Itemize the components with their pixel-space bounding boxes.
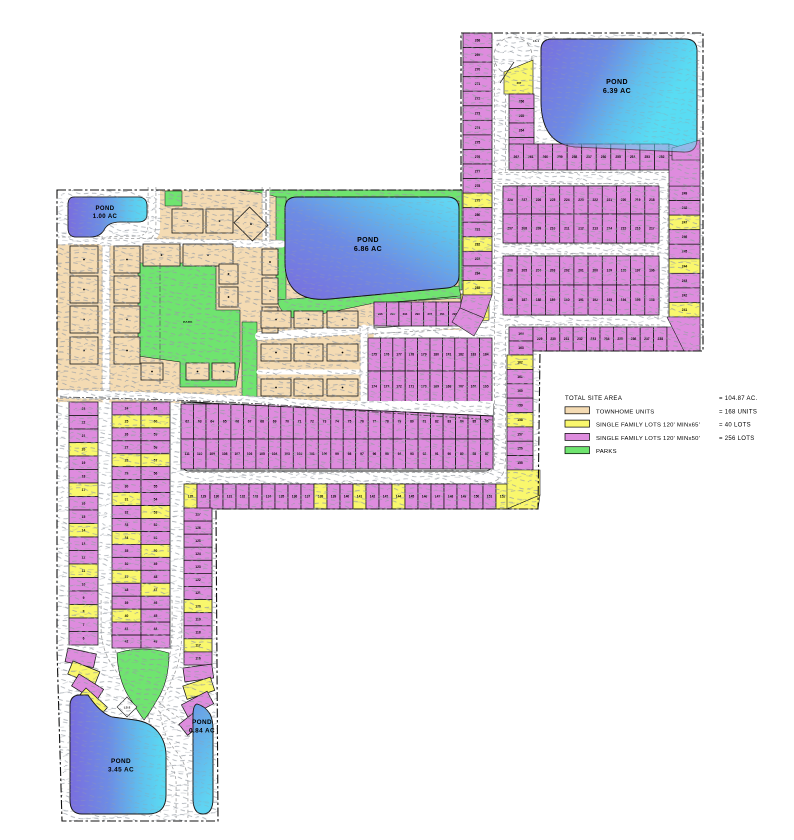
svg-text:214: 214 [607,227,613,231]
svg-text:237: 237 [644,337,650,341]
svg-text:99: 99 [335,452,339,456]
svg-text:217: 217 [649,227,655,231]
svg-text:20: 20 [82,447,86,451]
svg-text:30: 30 [125,484,129,488]
svg-text:142: 142 [370,495,376,499]
svg-text:44: 44 [154,627,158,631]
svg-text:6.86 AC: 6.86 AC [354,246,382,253]
svg-text:205: 205 [522,269,528,273]
svg-text:37: 37 [125,575,129,579]
svg-text:206: 206 [507,269,513,273]
svg-text:= 40 LOTS: = 40 LOTS [719,423,751,429]
svg-text:130: 130 [214,495,220,499]
svg-text:84: 84 [460,420,464,424]
svg-text:57: 57 [154,459,158,463]
svg-text:144: 144 [396,495,402,499]
svg-text:33: 33 [125,523,129,527]
svg-text:53: 53 [154,510,158,514]
svg-text:281: 281 [475,228,481,232]
svg-text:35: 35 [125,549,129,553]
svg-text:25: 25 [125,420,129,424]
svg-text:230: 230 [550,337,556,341]
svg-text:264: 264 [519,128,525,132]
svg-text:234: 234 [604,337,610,341]
svg-text:15: 15 [82,515,86,519]
svg-text:276: 276 [475,155,481,159]
svg-text:7: 7 [83,623,85,627]
svg-text:231: 231 [564,337,570,341]
svg-text:273: 273 [475,111,481,115]
svg-text:104: 104 [272,452,278,456]
svg-text:196: 196 [649,298,655,302]
svg-text:109: 109 [209,452,215,456]
svg-text:182: 182 [458,353,464,357]
svg-text:161: 161 [517,375,523,379]
svg-text:208: 208 [522,227,528,231]
svg-text:143: 143 [383,495,389,499]
svg-text:158: 158 [517,418,523,422]
svg-text:165: 165 [483,385,489,389]
svg-text:45: 45 [154,614,158,618]
svg-text:202: 202 [564,269,570,273]
svg-text:198: 198 [621,269,627,273]
svg-text:173: 173 [384,385,390,389]
svg-text:92: 92 [423,452,427,456]
svg-text:36: 36 [125,562,129,566]
svg-text:28: 28 [125,459,129,463]
svg-text:PARK: PARK [183,320,193,324]
svg-text:POND: POND [96,206,115,212]
svg-text:65: 65 [223,420,227,424]
svg-text:190: 190 [564,298,570,302]
svg-text:177: 177 [396,353,402,357]
svg-text:62: 62 [185,420,189,424]
svg-text:91: 91 [435,452,439,456]
svg-text:246: 246 [682,235,688,239]
svg-text:178: 178 [409,353,415,357]
svg-text:203: 203 [550,269,556,273]
svg-text:58: 58 [154,446,158,450]
svg-text:96: 96 [373,452,377,456]
svg-text:257: 257 [586,155,592,159]
svg-text:31: 31 [125,497,129,501]
svg-text:197: 197 [635,269,641,273]
svg-text:180: 180 [433,353,439,357]
svg-text:117: 117 [195,644,200,648]
svg-text:260: 260 [543,155,549,159]
svg-text:269: 269 [475,53,481,57]
svg-text:POND: POND [111,758,131,765]
svg-text:279: 279 [475,199,481,203]
svg-text:16: 16 [82,501,86,505]
svg-text:79: 79 [398,420,402,424]
svg-text:192: 192 [592,298,598,302]
svg-text:271: 271 [475,82,481,86]
svg-text:90: 90 [447,452,451,456]
svg-text:11: 11 [82,569,86,573]
svg-text:23: 23 [82,407,86,411]
svg-text:86: 86 [485,420,489,424]
svg-text:59: 59 [154,433,158,437]
svg-text:123: 123 [195,565,201,569]
svg-text:148: 148 [448,495,454,499]
svg-text:186: 186 [507,298,513,302]
svg-text:278: 278 [475,184,481,188]
svg-text:77: 77 [373,420,377,424]
svg-text:258: 258 [572,155,578,159]
svg-text:294: 294 [403,312,408,316]
svg-text:209: 209 [536,227,542,231]
svg-text:42: 42 [125,640,129,644]
svg-text:295: 295 [390,312,395,316]
svg-text:3.45 AC: 3.45 AC [108,767,134,774]
svg-text:141: 141 [357,495,363,499]
svg-text:267: 267 [517,81,522,85]
svg-text:105: 105 [259,452,265,456]
svg-text:49: 49 [154,562,158,566]
svg-text:200: 200 [592,269,598,273]
svg-text:40: 40 [125,614,129,618]
svg-text:75: 75 [348,420,352,424]
svg-text:80: 80 [410,420,414,424]
svg-text:196: 196 [649,269,655,273]
svg-text:0.84 AC: 0.84 AC [189,728,215,735]
svg-text:187: 187 [522,298,528,302]
svg-text:34: 34 [125,536,129,540]
svg-text:159: 159 [517,404,523,408]
svg-text:= 168 UNITS: = 168 UNITS [719,409,757,415]
svg-text:272: 272 [475,97,481,101]
svg-text:146: 146 [422,495,428,499]
svg-text:225: 225 [550,198,556,202]
svg-text:183: 183 [471,353,477,357]
svg-text:171: 171 [409,385,415,389]
svg-text:151: 151 [487,495,493,499]
svg-text:296: 296 [378,312,383,316]
svg-text:133: 133 [253,495,259,499]
svg-text:221: 221 [607,198,613,202]
svg-text:118: 118 [195,631,200,635]
svg-text:125: 125 [195,539,201,543]
svg-text:97: 97 [360,452,364,456]
svg-text:137: 137 [305,495,311,499]
svg-text:249: 249 [682,192,688,196]
svg-text:78: 78 [385,420,389,424]
svg-text:LS-1: LS-1 [533,39,540,43]
svg-text:167: 167 [458,385,464,389]
svg-text:116: 116 [195,657,200,661]
svg-text:211: 211 [564,227,569,231]
svg-text:93: 93 [410,452,414,456]
svg-text:PARKS: PARKS [596,449,617,455]
svg-text:132: 132 [240,495,246,499]
svg-text:43: 43 [154,640,158,644]
svg-text:169: 169 [433,385,439,389]
svg-text:244: 244 [682,264,688,268]
svg-text:227: 227 [522,198,528,202]
svg-text:127: 127 [195,513,201,517]
svg-text:121: 121 [195,591,201,595]
svg-text:195: 195 [635,298,641,302]
svg-text:22: 22 [82,420,86,424]
svg-text:145: 145 [409,495,415,499]
svg-text:283: 283 [475,257,481,261]
svg-text:70: 70 [285,420,289,424]
svg-text:285: 285 [475,286,481,290]
svg-text:238: 238 [658,337,664,341]
svg-text:210: 210 [550,227,556,231]
svg-text:9: 9 [83,596,85,600]
svg-text:229: 229 [537,337,543,341]
svg-text:147: 147 [435,495,441,499]
svg-text:26: 26 [125,433,129,437]
svg-text:10: 10 [82,583,86,587]
svg-text:51: 51 [154,536,158,540]
svg-text:160: 160 [517,389,523,393]
svg-text:155: 155 [517,461,523,465]
svg-text:280: 280 [475,213,481,217]
svg-text:61: 61 [154,407,158,411]
svg-text:19: 19 [82,461,86,465]
svg-text:24: 24 [125,407,129,411]
svg-text:14: 14 [82,529,86,533]
svg-text:292: 292 [427,312,432,316]
svg-text:83: 83 [447,420,451,424]
svg-text:82: 82 [435,420,439,424]
svg-text:176: 176 [384,353,390,357]
svg-text:247: 247 [682,221,688,225]
svg-text:188: 188 [536,298,542,302]
svg-text:261: 261 [528,155,534,159]
svg-text:12: 12 [82,556,86,560]
svg-text:170: 170 [421,385,427,389]
svg-text:223: 223 [578,198,584,202]
svg-text:POND: POND [357,237,379,244]
svg-text:8: 8 [83,610,85,614]
svg-text:101: 101 [309,452,315,456]
svg-text:174: 174 [371,385,377,389]
svg-text:179: 179 [421,353,427,357]
svg-text:233: 233 [591,337,597,341]
svg-text:64: 64 [210,420,214,424]
svg-text:242: 242 [682,293,688,297]
svg-text:98: 98 [348,452,352,456]
svg-text:226: 226 [536,198,542,202]
svg-text:194: 194 [621,298,627,302]
svg-text:47: 47 [154,588,158,592]
svg-text:54: 54 [154,497,158,501]
svg-text:128: 128 [188,495,194,499]
svg-text:38: 38 [125,588,129,592]
svg-text:268: 268 [475,39,481,43]
svg-text:131: 131 [227,495,233,499]
svg-text:213: 213 [592,227,598,231]
svg-text:218: 218 [649,198,655,202]
svg-text:201: 201 [578,269,584,273]
svg-text:139: 139 [331,495,337,499]
svg-text:95: 95 [385,452,389,456]
svg-text:157: 157 [517,432,523,436]
svg-text:13: 13 [82,542,86,546]
svg-text:270: 270 [475,68,481,72]
svg-text:150: 150 [474,495,480,499]
svg-text:252: 252 [659,155,665,159]
svg-text:68: 68 [260,420,264,424]
svg-text:215: 215 [621,227,627,231]
svg-text:126: 126 [195,526,201,530]
svg-text:243: 243 [682,279,688,283]
svg-text:259: 259 [557,155,563,159]
svg-text:235: 235 [617,337,623,341]
svg-text:103: 103 [284,452,290,456]
svg-text:166: 166 [471,385,477,389]
svg-text:71: 71 [298,420,302,424]
svg-text:85: 85 [472,420,476,424]
svg-text:119: 119 [195,617,200,621]
svg-text:129: 129 [201,495,207,499]
svg-text:89: 89 [460,452,464,456]
svg-text:136: 136 [292,495,298,499]
svg-text:124: 124 [195,552,201,556]
svg-text:266: 266 [519,100,525,104]
svg-text:111: 111 [185,452,190,456]
svg-text:56: 56 [154,471,158,475]
svg-text:107: 107 [234,452,240,456]
svg-text:6: 6 [83,637,85,641]
svg-text:224: 224 [564,198,570,202]
svg-text:100: 100 [322,452,328,456]
svg-text:164: 164 [518,332,524,336]
svg-text:17: 17 [82,488,86,492]
svg-text:27: 27 [125,446,129,450]
svg-text:73: 73 [323,420,327,424]
svg-text:52: 52 [154,523,158,527]
svg-text:102: 102 [297,452,303,456]
svg-text:66: 66 [235,420,239,424]
svg-text:LS-2: LS-2 [124,706,131,710]
svg-text:48: 48 [154,575,158,579]
svg-text:216: 216 [635,227,641,231]
svg-text:1.00 AC: 1.00 AC [93,214,118,220]
svg-text:152: 152 [500,495,506,499]
svg-text:199: 199 [607,269,613,273]
svg-text:= 104.87 AC.: = 104.87 AC. [719,396,757,402]
svg-text:81: 81 [423,420,427,424]
svg-text:255: 255 [615,155,621,159]
svg-text:207: 207 [507,227,513,231]
svg-text:18: 18 [82,474,86,478]
svg-text:SINGLE FAMILY LOTS 120' MINx65: SINGLE FAMILY LOTS 120' MINx65' [596,423,700,429]
svg-text:TOWNHOME UNITS: TOWNHOME UNITS [596,409,654,415]
svg-text:46: 46 [154,601,158,605]
svg-text:88: 88 [472,452,476,456]
svg-text:134: 134 [266,495,272,499]
svg-text:39: 39 [125,601,129,605]
svg-text:191: 191 [578,298,584,302]
svg-text:149: 149 [461,495,467,499]
svg-text:67: 67 [248,420,252,424]
svg-text:63: 63 [198,420,202,424]
svg-text:108: 108 [222,452,228,456]
svg-text:72: 72 [310,420,314,424]
svg-text:50: 50 [154,549,158,553]
svg-text:184: 184 [483,353,489,357]
svg-text:175: 175 [371,353,377,357]
svg-text:162: 162 [517,360,523,364]
svg-text:248: 248 [682,206,688,210]
svg-text:193: 193 [607,298,613,302]
svg-text:163: 163 [518,346,524,350]
svg-text:41: 41 [125,627,129,631]
svg-text:228: 228 [507,198,513,202]
svg-text:241: 241 [682,308,688,312]
svg-text:138: 138 [318,495,324,499]
svg-text:204: 204 [536,269,542,273]
svg-text:76: 76 [360,420,364,424]
svg-text:293: 293 [415,312,420,316]
svg-text:55: 55 [154,484,158,488]
svg-text:212: 212 [578,227,584,231]
svg-text:236: 236 [631,337,637,341]
svg-text:262: 262 [514,155,520,159]
svg-text:181: 181 [446,353,452,357]
svg-text:168: 168 [446,385,452,389]
svg-text:122: 122 [195,578,201,582]
svg-text:60: 60 [154,420,158,424]
svg-text:140: 140 [344,495,350,499]
svg-text:172: 172 [396,385,402,389]
svg-text:TOTAL SITE AREA: TOTAL SITE AREA [565,396,622,402]
svg-text:106: 106 [247,452,253,456]
svg-text:6.39 AC: 6.39 AC [603,88,631,95]
svg-text:265: 265 [519,114,525,118]
svg-text:291: 291 [440,312,445,316]
svg-text:232: 232 [577,337,583,341]
svg-text:274: 274 [475,126,481,130]
svg-text:110: 110 [197,452,202,456]
svg-text:189: 189 [550,298,556,302]
svg-text:= 256 LOTS: = 256 LOTS [719,436,755,442]
svg-text:220: 220 [621,198,627,202]
svg-text:253: 253 [644,155,650,159]
svg-text:POND: POND [606,79,628,86]
svg-text:282: 282 [475,242,481,246]
svg-text:254: 254 [630,155,636,159]
svg-text:69: 69 [273,420,277,424]
svg-text:284: 284 [475,271,481,275]
svg-text:94: 94 [398,452,402,456]
svg-text:256: 256 [601,155,607,159]
svg-text:135: 135 [279,495,285,499]
svg-text:277: 277 [475,170,481,174]
svg-text:156: 156 [517,447,523,451]
svg-text:222: 222 [592,198,598,202]
svg-text:120: 120 [195,604,201,608]
svg-text:275: 275 [475,140,481,144]
svg-text:219: 219 [635,198,641,202]
svg-text:74: 74 [335,420,339,424]
svg-text:POND: POND [192,719,212,726]
svg-text:29: 29 [125,471,129,475]
svg-text:32: 32 [125,510,129,514]
svg-text:245: 245 [682,250,688,254]
svg-text:87: 87 [485,452,489,456]
svg-text:SINGLE FAMILY LOTS 120' MINx50: SINGLE FAMILY LOTS 120' MINx50' [596,436,700,442]
svg-text:21: 21 [82,434,86,438]
